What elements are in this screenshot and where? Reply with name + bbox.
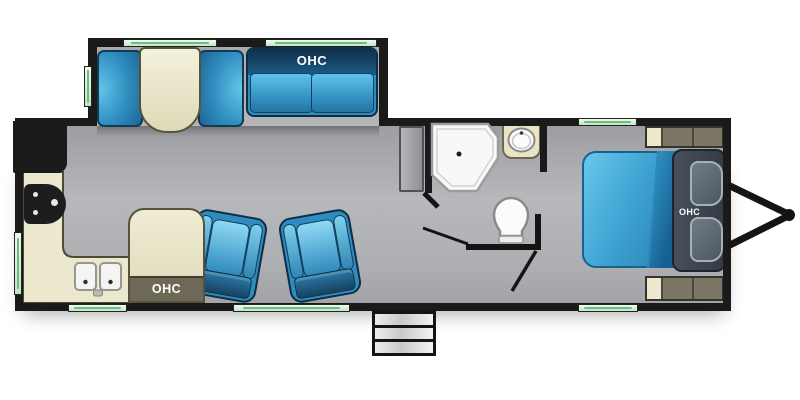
sofa-cushion-left <box>250 73 313 113</box>
bed-headboard: OHC <box>672 149 726 272</box>
entry-steps <box>372 311 436 356</box>
slideout-right-wall <box>379 38 388 126</box>
bathroom-left-wall <box>425 126 432 193</box>
nightstand-door <box>694 278 723 299</box>
step-tread <box>375 328 433 342</box>
wardrobe-cabinet <box>399 126 424 192</box>
window-slideout-side <box>84 66 92 107</box>
nightstand-bottom <box>645 276 724 301</box>
dinette-bench-right <box>198 50 244 127</box>
window-left-wall <box>14 232 22 295</box>
burner-dot <box>51 199 58 206</box>
hitch-bar-top <box>728 185 786 213</box>
sofa-cushion-right <box>311 73 374 113</box>
window-sofa-top <box>265 39 377 47</box>
bedroom-ohc-label: OHC <box>679 207 700 217</box>
hitch-bar-bottom <box>728 217 786 246</box>
burner-dot <box>33 192 38 197</box>
nightstand-door <box>663 278 694 299</box>
window-bedroom-bottom <box>578 304 638 312</box>
theater-seat-right <box>277 207 363 304</box>
window-dinette-top <box>123 39 217 47</box>
right-wall <box>723 118 731 311</box>
range-cooktop <box>24 184 66 224</box>
slideout-shadow <box>97 126 379 137</box>
step-tread <box>375 342 433 353</box>
pillow-bottom <box>690 217 723 262</box>
pillow-top <box>690 161 723 206</box>
step-tread <box>375 314 433 328</box>
nightstand-door <box>663 128 694 146</box>
kitchen-ohc-label: OHC <box>130 276 203 301</box>
bathroom-vanity <box>502 124 541 159</box>
top-wall-left <box>15 118 97 126</box>
hitch-ball <box>783 209 795 221</box>
kitchen-cabinet: OHC <box>128 208 205 303</box>
dinette-table <box>139 47 201 133</box>
nightstand-shelf <box>647 128 663 146</box>
burner-dot <box>33 210 38 215</box>
nightstand-shelf <box>647 278 663 299</box>
sofa: OHC <box>246 47 378 117</box>
window-bedroom-top <box>578 118 637 126</box>
window-kitchen-bottom <box>68 304 127 312</box>
nightstand-door <box>694 128 723 146</box>
window-living-bottom <box>233 304 350 312</box>
bathroom-right-wall <box>540 126 547 172</box>
floorplan-canvas: OHC OHC OHC <box>0 0 800 400</box>
nightstand-top <box>645 126 724 148</box>
sofa-ohc-label: OHC <box>248 53 376 68</box>
top-wall-right <box>379 118 731 126</box>
dinette-bench-left <box>97 50 143 127</box>
